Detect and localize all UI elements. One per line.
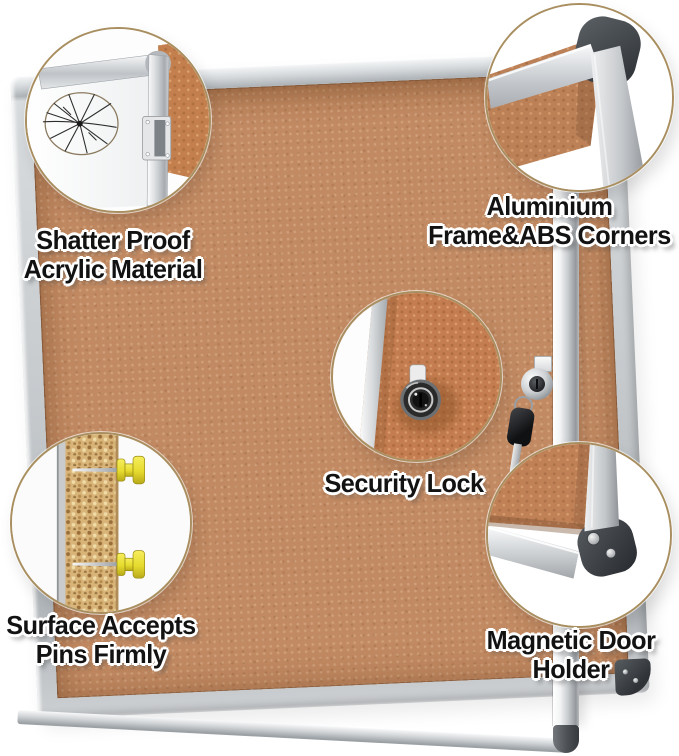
label-line: Aluminium: [424, 192, 675, 221]
label-pins: Surface Accepts Pins Firmly: [3, 611, 199, 669]
label-security-lock: Security Lock: [317, 469, 492, 498]
label-magnetic-holder: Magnetic Door Holder: [465, 626, 676, 684]
callout-security-lock: [331, 291, 502, 462]
callout-shatter-proof: [25, 27, 211, 213]
key-head: [506, 406, 536, 447]
lock-face-icon: [400, 380, 441, 421]
callout-aluminium-corner: [485, 3, 674, 192]
side-rail: [584, 444, 619, 531]
lock-core: [529, 376, 545, 392]
label-line: Acrylic Material: [9, 255, 217, 284]
label-line: Magnetic Door: [465, 626, 676, 655]
lock-cylinder-icon: [521, 368, 553, 400]
lock-closeup-illustration: [333, 293, 500, 460]
label-line: Security Lock: [317, 469, 492, 498]
label-line: Shatter Proof: [9, 226, 217, 255]
product-infographic: Shatter Proof Acrylic Material Aluminium…: [0, 0, 679, 756]
open-door-bottom-rail: [17, 710, 569, 753]
label-line: Pins Firmly: [3, 640, 199, 669]
label-line: Surface Accepts: [3, 611, 199, 640]
door-rail-end-cap: [553, 725, 579, 753]
frame-corner-illustration: [487, 5, 672, 190]
label-aluminium-frame: Aluminium Frame&ABS Corners: [424, 192, 675, 250]
hinge-icon: [143, 116, 171, 160]
shattered-acrylic-illustration: [27, 29, 209, 211]
cork-cross-section: [57, 434, 119, 612]
label-line: Frame&ABS Corners: [424, 221, 675, 250]
magnet-corner-illustration: [488, 444, 670, 626]
callout-pins: [10, 432, 192, 614]
keyhole-icon: [536, 379, 538, 389]
pins-cross-section-illustration: [12, 434, 190, 612]
label-shatter-proof: Shatter Proof Acrylic Material: [9, 226, 217, 284]
label-line: Holder: [465, 655, 676, 684]
callout-magnetic-holder: [486, 442, 672, 628]
